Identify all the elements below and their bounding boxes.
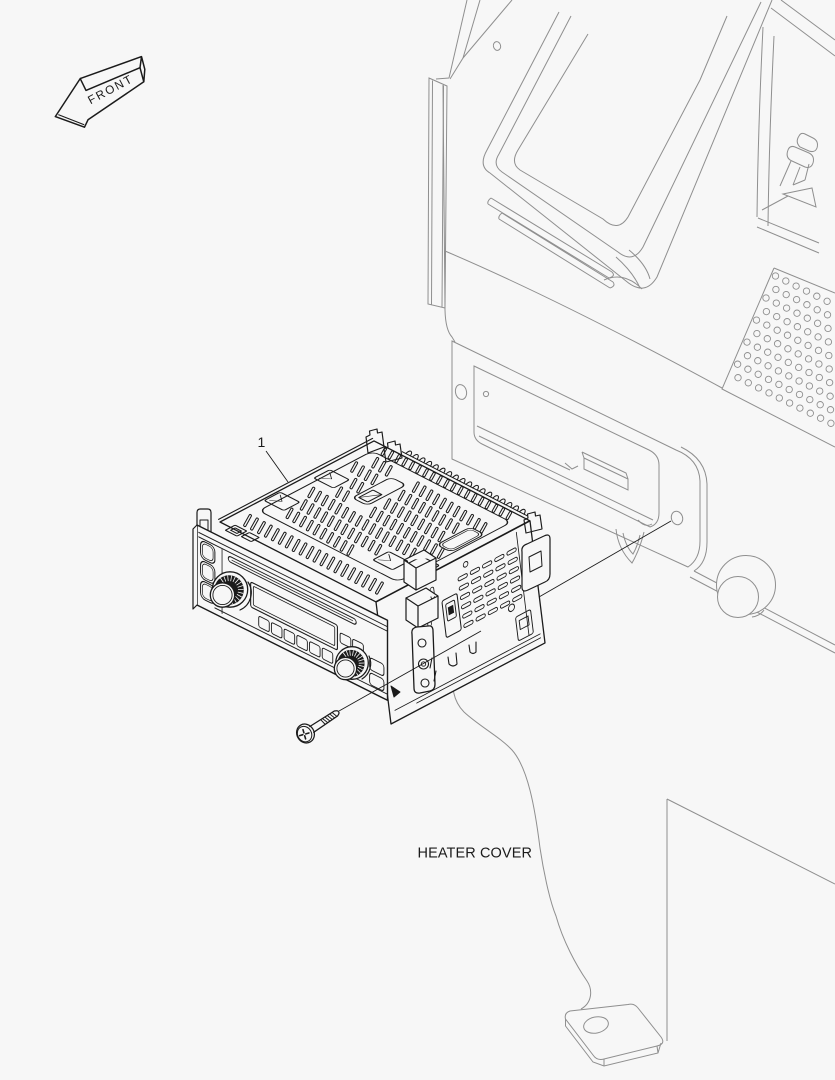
svg-text:HEATER COVER: HEATER COVER [418,846,533,862]
svg-text:1: 1 [258,434,266,450]
